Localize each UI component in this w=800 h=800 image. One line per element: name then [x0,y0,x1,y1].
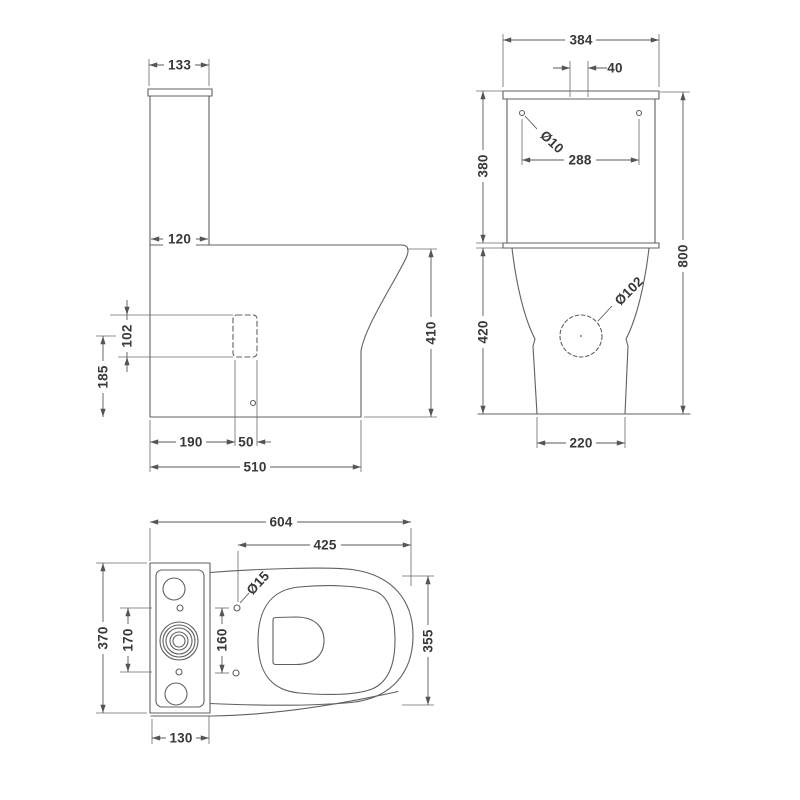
dim-side-outlet-centre-height: 185 [96,336,117,417]
dim-label-130: 130 [169,731,192,746]
dim-label-355: 355 [421,629,436,652]
front-outlet-centre-dot [580,335,582,337]
front-cistern-base [503,243,659,248]
dim-plan-pan-width: 355 [402,576,436,705]
dim-label-50: 50 [238,435,253,450]
dim-plan-overall-projection: 604 [150,515,411,587]
dim-front-cistern-height: 380 [476,91,505,243]
dim-label-604: 604 [269,515,292,530]
dim-label-288: 288 [568,153,591,168]
dim-label-510: 510 [243,460,266,475]
front-fixing-hole-right [637,111,642,116]
plan-cistern-outer [150,563,210,713]
dim-front-overall-height: 800 [660,92,691,414]
dim-front-outlet-diameter: Ø102 [598,274,646,321]
technical-drawing-page: 133 120 102 185 [0,0,800,800]
front-fixing-hole-left [520,111,525,116]
dim-label-425: 425 [313,538,336,553]
plan-bowl-opening [273,617,324,665]
dim-front-fixing-hole-diameter: Ø10 [525,116,567,156]
dim-label-170: 170 [121,628,136,651]
plan-hinge-hole-bottom [233,670,239,676]
side-pan-outline [150,245,408,417]
front-pan-left-outline [512,248,537,414]
plan-flush-valve-rings [160,622,198,660]
dim-label-384: 384 [569,33,592,48]
side-elevation-view: 133 120 102 185 [96,58,439,475]
plan-pan-base-line [151,692,398,717]
front-cistern-lid [503,91,659,99]
dim-label-120: 120 [168,232,191,247]
dim-label-380: 380 [476,154,491,177]
plan-seat-ring [258,586,395,695]
dim-front-pedestal-width: 220 [537,417,625,451]
dim-side-outlet-diameter: 102 [110,300,233,372]
dim-label-d102: Ø102 [612,274,647,309]
side-cistern-lid [148,89,212,96]
dim-label-190: 190 [179,435,202,450]
plan-hinge-hole-top [234,605,240,611]
dim-label-d15: Ø15 [244,568,273,598]
dim-label-410: 410 [424,321,439,344]
dim-plan-hinge-hole-diameter: Ø15 [240,568,273,603]
plan-view: 604 425 Ø15 370 [96,515,436,746]
dim-side-cistern-bottom-depth: 120 [151,232,208,247]
dim-label-185: 185 [96,365,111,388]
dim-plan-cistern-hole-centres: 170 [120,608,152,672]
dim-label-160: 160 [215,628,230,651]
dim-side-overall-depth: 510 [150,460,361,475]
front-pan-right-outline [625,248,649,414]
plan-cistern-fixing-hole-bottom [176,669,182,675]
dim-front-cistern-width: 384 [503,33,659,88]
dim-label-d10: Ø10 [537,128,566,157]
side-outlet-dashed [233,315,257,357]
side-fixing-hole [251,401,256,406]
front-elevation-view: 384 40 Ø10 288 [476,33,691,451]
side-cistern-body [150,96,209,245]
dim-label-800: 800 [676,244,691,267]
plan-cistern-fixing-hole-top [177,605,183,611]
dim-label-133: 133 [168,58,191,73]
dim-label-220: 220 [569,436,592,451]
dim-label-40: 40 [607,61,622,76]
dim-plan-cistern-depth: 130 [152,716,209,746]
dim-front-fixing-hole-centres: 288 [522,119,639,168]
dim-label-420: 420 [476,320,491,343]
dim-plan-hinge-hole-centres: 160 [215,608,230,673]
dim-side-pan-height: 410 [364,249,439,417]
dim-side-cistern-top-width: 133 [149,58,209,87]
plan-pan-outer-outline [210,568,413,705]
plan-cistern-bottom-hole [165,683,187,705]
dim-side-outlet-width: 50 [221,435,271,450]
dim-front-pan-height: 420 [476,248,504,414]
plan-cistern-top-hole [163,578,185,600]
dim-label-370: 370 [96,626,111,649]
dim-label-102: 102 [120,324,135,347]
toilet-dimension-drawing: 133 120 102 185 [0,0,800,800]
